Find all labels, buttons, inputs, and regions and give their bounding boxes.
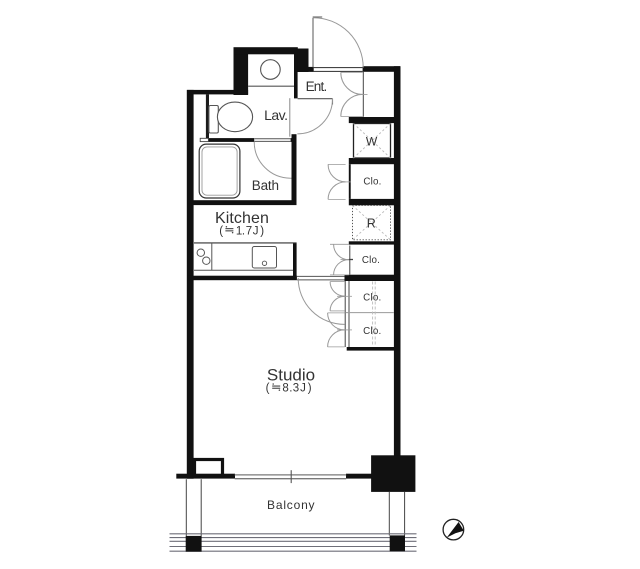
svg-text:Balcony: Balcony xyxy=(267,498,315,512)
svg-text:Clo.: Clo. xyxy=(363,176,381,187)
svg-text:Clo.: Clo. xyxy=(363,292,381,303)
svg-text:Kitchen: Kitchen xyxy=(215,210,269,227)
svg-text:Lav.: Lav. xyxy=(264,107,287,123)
svg-text:Bath: Bath xyxy=(252,178,279,193)
svg-text:Clo.: Clo. xyxy=(362,255,380,266)
svg-text:Ent.: Ent. xyxy=(306,79,327,94)
svg-text:Studio: Studio xyxy=(267,365,315,384)
svg-text:Clo.: Clo. xyxy=(363,326,381,337)
svg-text:W: W xyxy=(366,134,378,148)
svg-text:R: R xyxy=(367,216,376,230)
